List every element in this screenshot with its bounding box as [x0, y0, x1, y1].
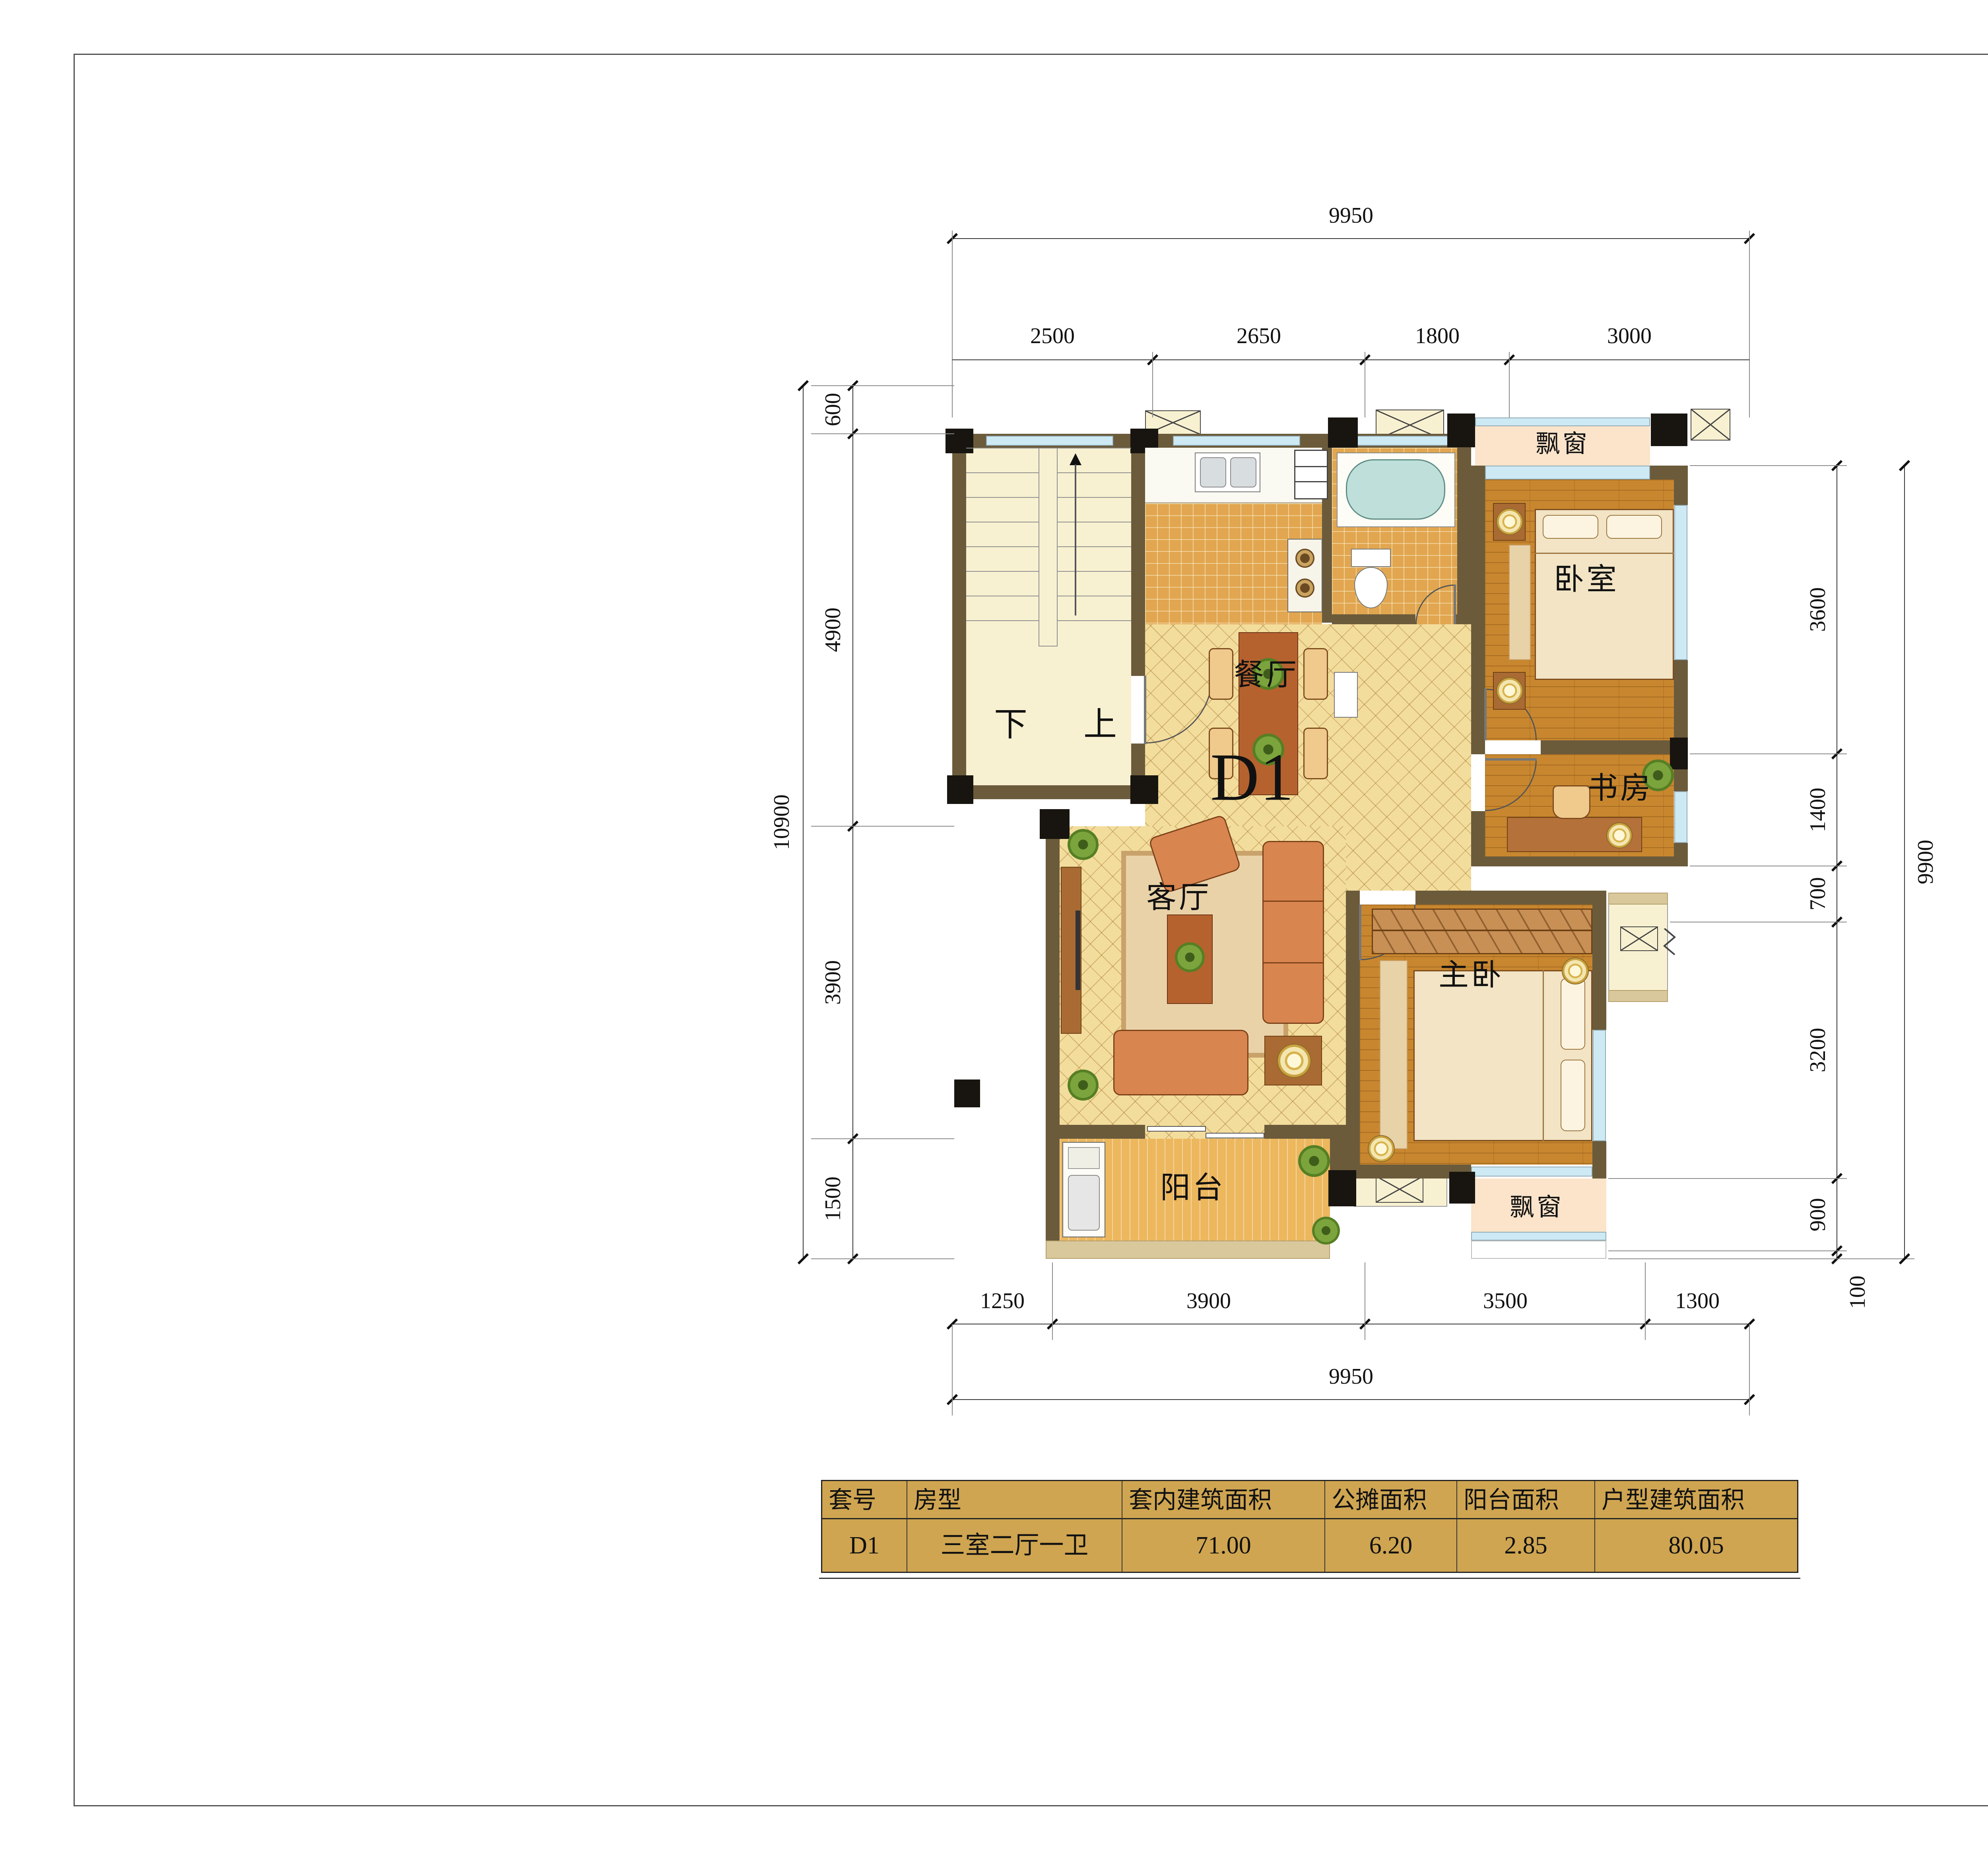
dim-line — [952, 1324, 1749, 1324]
bedroom-north-window — [1485, 466, 1650, 480]
plant-icon — [1068, 1070, 1099, 1101]
dim-ext — [952, 1324, 953, 1415]
wall — [1330, 1125, 1346, 1173]
room-label-bay-top: 飘窗 — [1536, 423, 1590, 459]
dim-ext — [1690, 866, 1847, 866]
master-door-leaf — [1359, 905, 1361, 960]
dim-right-seg: 3600 — [1805, 587, 1831, 632]
pillow — [1561, 978, 1585, 1050]
dim-left-seg: 600 — [820, 393, 846, 426]
dim-ext — [1608, 1178, 1847, 1179]
blanket-line — [1543, 970, 1544, 1141]
cell-layout: 三室二厅一卫 — [907, 1519, 1122, 1572]
column — [1651, 414, 1687, 446]
dim-line — [952, 359, 1749, 360]
column — [1449, 1172, 1475, 1204]
dim-ext — [1645, 1262, 1646, 1340]
area-table-data-row: D1 三室二厅一卫 71.00 6.20 2.85 80.05 — [822, 1519, 1797, 1572]
dim-left-seg: 3900 — [820, 960, 846, 1005]
nightstand-decor — [1368, 1135, 1395, 1162]
dim-bottom-seg: 3900 — [1186, 1288, 1231, 1314]
dim-bottom-seg: 1300 — [1675, 1288, 1720, 1314]
wall — [1471, 740, 1485, 754]
room-label-dining: 餐厅 — [1234, 650, 1299, 694]
sink-basin — [1200, 457, 1226, 487]
table-bottom-rule — [819, 1578, 1800, 1579]
desk-chair — [1553, 785, 1590, 819]
wall — [1455, 614, 1471, 624]
fridge — [1294, 450, 1328, 499]
dining-chair — [1209, 648, 1233, 700]
bedroom-door-leaf — [1484, 689, 1487, 740]
column — [1328, 1170, 1356, 1206]
plant-icon — [1068, 829, 1099, 860]
stair-north-window — [986, 436, 1113, 446]
cell-balcony-area: 2.85 — [1457, 1519, 1595, 1572]
toilet-tank — [1351, 549, 1391, 567]
header-total-area: 户型建筑面积 — [1595, 1481, 1797, 1519]
sofa-long — [1262, 841, 1324, 1024]
wall — [1332, 614, 1415, 624]
dim-left-seg: 4900 — [820, 608, 846, 652]
master-east-window — [1593, 1030, 1606, 1141]
fridge-shelf-line — [1295, 466, 1327, 467]
dim-line — [952, 238, 1749, 239]
dim-ext — [811, 826, 954, 827]
sofa-loveseat — [1113, 1030, 1248, 1095]
wall — [1457, 448, 1471, 624]
column — [1447, 414, 1475, 447]
kitchen-north-window — [1173, 436, 1300, 446]
stair-direction-arrow — [1070, 453, 1081, 465]
ac-platform-top-band — [1608, 893, 1668, 905]
entry-door-leaf — [1144, 676, 1146, 744]
dim-ext — [1749, 1324, 1750, 1415]
nightstand-decor — [1496, 677, 1523, 704]
bedside-rug — [1509, 545, 1531, 660]
bedside-rug — [1380, 960, 1408, 1149]
dim-ext — [1690, 753, 1847, 754]
hall-washbasin — [1334, 672, 1358, 718]
dining-chair — [1303, 648, 1328, 700]
dim-bottom-overall: 9950 — [1329, 1364, 1373, 1389]
floor-plan-page: 飘窗 卧室 书房 餐厅 D1 客厅 主卧 阳台 飘窗 下 上 9950 2500… — [0, 0, 1988, 1860]
dim-top-overall: 9950 — [1329, 203, 1373, 228]
wall — [1046, 1125, 1145, 1139]
room-label-living: 客厅 — [1146, 873, 1211, 916]
balcony-sliding-door — [1147, 1126, 1206, 1132]
dim-right-seg: 100 — [1845, 1276, 1870, 1309]
dim-ext — [952, 231, 953, 417]
wall — [1046, 826, 1060, 1139]
area-table-header-row: 套号 房型 套内建筑面积 公摊面积 阳台面积 户型建筑面积 — [822, 1481, 1797, 1519]
master-south-glazing — [1471, 1167, 1592, 1177]
dim-left-seg: 1500 — [820, 1177, 846, 1221]
dim-top-seg: 2500 — [1030, 323, 1075, 349]
sink-basin — [1230, 457, 1256, 487]
bath-north-window — [1352, 436, 1451, 446]
dim-ext — [811, 1138, 954, 1139]
column — [1328, 417, 1358, 448]
bathtub-basin — [1346, 459, 1445, 520]
wall — [1131, 448, 1145, 676]
dim-line — [852, 386, 853, 1259]
dim-ext — [1608, 1258, 1914, 1259]
dim-top-seg: 1800 — [1415, 323, 1460, 349]
header-layout: 房型 — [907, 1481, 1122, 1519]
column — [947, 775, 973, 804]
dining-chair — [1303, 728, 1328, 779]
header-interior-area: 套内建筑面积 — [1122, 1481, 1325, 1519]
stove-burner — [1295, 579, 1314, 598]
tv-screen — [1076, 911, 1080, 990]
dim-ext — [1670, 922, 1847, 922]
plant-icon — [1298, 1145, 1330, 1177]
wall — [1592, 891, 1606, 1030]
header-unit-no: 套号 — [822, 1481, 907, 1519]
dim-right-seg: 1400 — [1805, 788, 1831, 832]
blanket-line — [1535, 553, 1674, 554]
stair-up-label: 上 — [1083, 698, 1119, 746]
dim-bottom-seg: 3500 — [1483, 1288, 1528, 1314]
dim-bottom-seg: 1250 — [980, 1288, 1025, 1314]
balcony-railing — [1046, 1241, 1330, 1259]
dim-ext — [1365, 1262, 1365, 1340]
dim-top-seg: 3000 — [1607, 323, 1652, 349]
pillow — [1561, 1060, 1585, 1131]
stair-rail — [1039, 448, 1058, 647]
sofa-cushion-line — [1262, 962, 1324, 963]
column — [1040, 809, 1070, 839]
bath-door-leaf — [1454, 584, 1456, 624]
dim-ext — [1052, 1262, 1053, 1340]
dim-ext — [1608, 1250, 1847, 1251]
wall — [1471, 811, 1485, 856]
dim-top-seg: 2650 — [1237, 323, 1281, 349]
wardrobe-rail — [1372, 930, 1592, 931]
wall — [1592, 1165, 1606, 1179]
dim-right-overall: 9900 — [1913, 840, 1938, 884]
ac-platform-bottom-band — [1608, 990, 1668, 1002]
wall — [952, 785, 1145, 799]
coffee-table-plant — [1175, 942, 1205, 972]
laundry-shelf — [1068, 1147, 1100, 1169]
dim-right-seg: 700 — [1805, 877, 1831, 911]
cell-total-area: 80.05 — [1595, 1519, 1797, 1572]
dim-ext — [1365, 352, 1365, 417]
desk-decor — [1606, 822, 1633, 848]
sofa-cushion-line — [1262, 901, 1324, 902]
dim-ext — [1749, 231, 1750, 417]
wardrobe — [1372, 909, 1592, 954]
fridge-shelf-line — [1295, 481, 1327, 482]
study-door-leaf — [1485, 758, 1537, 761]
dim-line — [1837, 466, 1837, 1259]
dim-ext — [811, 1258, 954, 1259]
cell-unit-no: D1 — [822, 1519, 907, 1572]
plant-icon — [1312, 1217, 1340, 1245]
wall — [1415, 891, 1606, 905]
area-table: 套号 房型 套内建筑面积 公摊面积 阳台面积 户型建筑面积 D1 三室二厅一卫 … — [821, 1480, 1798, 1573]
wall — [1046, 1139, 1060, 1241]
dim-right-seg: 900 — [1805, 1198, 1831, 1231]
nightstand — [1555, 956, 1591, 957]
column — [1670, 738, 1688, 769]
stair-arrow-stem — [1075, 464, 1076, 615]
dim-ext — [811, 385, 954, 386]
dim-ext — [1690, 465, 1847, 466]
dim-line — [803, 386, 804, 1259]
room-label-bedroom: 卧室 — [1554, 555, 1619, 598]
dim-ext — [1509, 352, 1510, 417]
dim-ext — [811, 433, 954, 434]
dim-line — [952, 1399, 1749, 1400]
column — [1130, 775, 1158, 804]
room-label-balcony: 阳台 — [1160, 1163, 1225, 1207]
dim-ext — [1152, 352, 1153, 417]
wall — [1674, 466, 1688, 505]
unit-label: D1 — [1210, 739, 1295, 816]
wall — [952, 448, 966, 799]
wall — [1346, 905, 1360, 1179]
ac-unit-symbol — [1620, 926, 1658, 951]
room-label-master: 主卧 — [1439, 950, 1504, 994]
cell-interior-area: 71.00 — [1122, 1519, 1325, 1572]
laundry-basin — [1068, 1175, 1100, 1231]
cell-shared-area: 6.20 — [1325, 1519, 1457, 1572]
wall — [1471, 466, 1485, 740]
wall-section-symbol — [1691, 409, 1730, 441]
wall — [1471, 856, 1688, 866]
bay-window-bottom-sill — [1471, 1241, 1606, 1259]
dim-left-overall: 10900 — [769, 794, 794, 850]
study-east-window — [1674, 791, 1687, 843]
wall-section-symbol — [1376, 1176, 1423, 1203]
pillow — [1606, 515, 1662, 539]
header-shared-area: 公摊面积 — [1325, 1481, 1457, 1519]
stove-burner — [1295, 549, 1314, 568]
room-label-bay-bottom: 飘窗 — [1510, 1187, 1564, 1223]
column — [954, 1079, 980, 1107]
dim-right-seg: 3200 — [1805, 1028, 1831, 1072]
bedroom-east-window — [1674, 505, 1687, 660]
pillow — [1543, 515, 1598, 539]
stair-down-label: 下 — [994, 698, 1030, 746]
room-label-study: 书房 — [1588, 763, 1653, 807]
bay-window-bottom-glazing — [1471, 1232, 1606, 1241]
wall — [1264, 1125, 1330, 1139]
header-balcony-area: 阳台面积 — [1457, 1481, 1595, 1519]
nightstand-decor — [1562, 957, 1589, 984]
side-table-decor — [1277, 1044, 1311, 1078]
nightstand-decor — [1496, 508, 1523, 535]
wall — [1346, 891, 1360, 905]
break-line-icon — [1663, 928, 1677, 956]
balcony-sliding-door — [1206, 1133, 1264, 1138]
dim-line — [1904, 466, 1905, 1259]
wall — [1541, 740, 1688, 754]
